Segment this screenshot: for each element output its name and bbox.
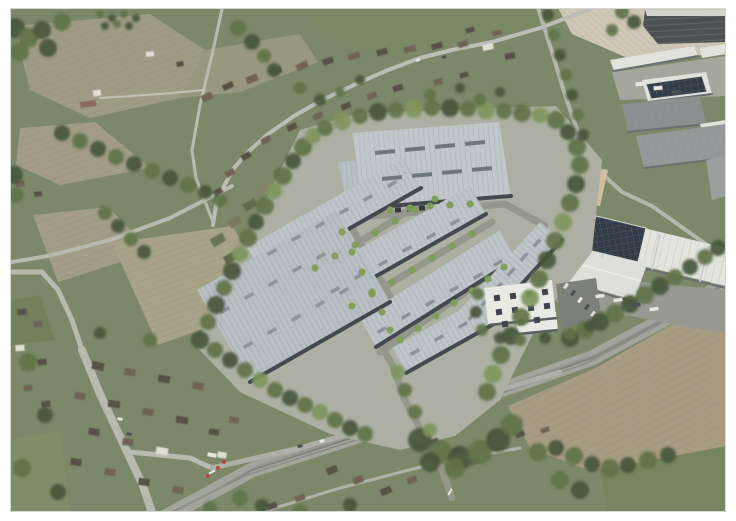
- photo-glaze: [10, 8, 726, 512]
- photo-area: [5, 5, 736, 521]
- photomontage-figure: [0, 0, 736, 521]
- aerial-photo: [0, 0, 736, 521]
